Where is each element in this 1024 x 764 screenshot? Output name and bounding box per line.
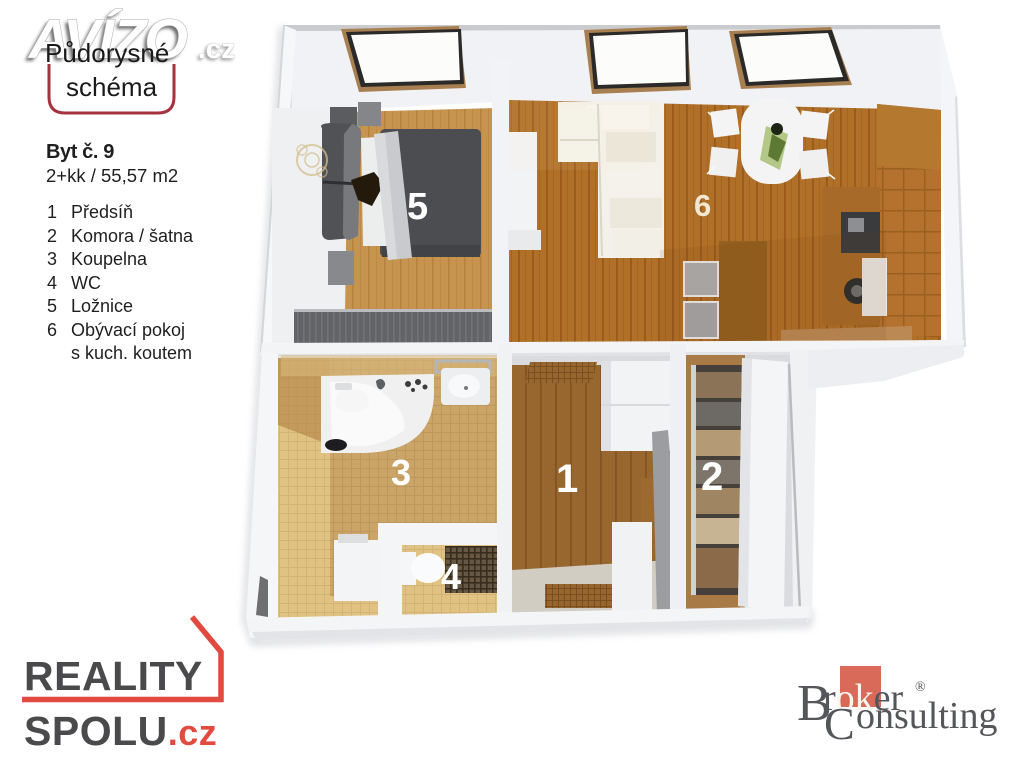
svg-text:®: ® bbox=[915, 680, 926, 695]
svg-text:4: 4 bbox=[47, 273, 57, 293]
svg-text:2: 2 bbox=[47, 226, 57, 246]
svg-text:Předsíň: Předsíň bbox=[71, 202, 133, 222]
svg-text:5: 5 bbox=[407, 186, 428, 228]
svg-text:5: 5 bbox=[47, 296, 57, 316]
svg-text:SPOLU.cz: SPOLU.cz bbox=[24, 708, 217, 754]
svg-text:6: 6 bbox=[47, 320, 57, 340]
svg-text:6: 6 bbox=[694, 188, 711, 223]
svg-text:Ložnice: Ložnice bbox=[71, 296, 133, 316]
svg-text:4: 4 bbox=[441, 556, 461, 597]
svg-text:2: 2 bbox=[701, 455, 723, 499]
svg-text:Půdorysné: Půdorysné bbox=[45, 38, 169, 68]
svg-text:REALITY: REALITY bbox=[24, 653, 203, 699]
svg-text:3: 3 bbox=[391, 452, 411, 493]
svg-text:s kuch. koutem: s kuch. koutem bbox=[71, 343, 192, 363]
svg-text:Koupelna: Koupelna bbox=[71, 249, 148, 269]
svg-text:.cz: .cz bbox=[198, 33, 235, 64]
svg-text:1: 1 bbox=[47, 202, 57, 222]
svg-text:schéma: schéma bbox=[66, 72, 158, 102]
svg-text:1: 1 bbox=[556, 457, 578, 501]
svg-text:C: C bbox=[824, 698, 855, 749]
svg-text:Obývací pokoj: Obývací pokoj bbox=[71, 320, 185, 340]
svg-text:3: 3 bbox=[47, 249, 57, 269]
svg-text:onsulting: onsulting bbox=[856, 695, 997, 737]
svg-text:2+kk / 55,57 m2: 2+kk / 55,57 m2 bbox=[46, 165, 178, 186]
svg-text:Komora / šatna: Komora / šatna bbox=[71, 226, 194, 246]
svg-text:Byt č. 9: Byt č. 9 bbox=[46, 141, 114, 163]
svg-text:WC: WC bbox=[71, 273, 101, 293]
